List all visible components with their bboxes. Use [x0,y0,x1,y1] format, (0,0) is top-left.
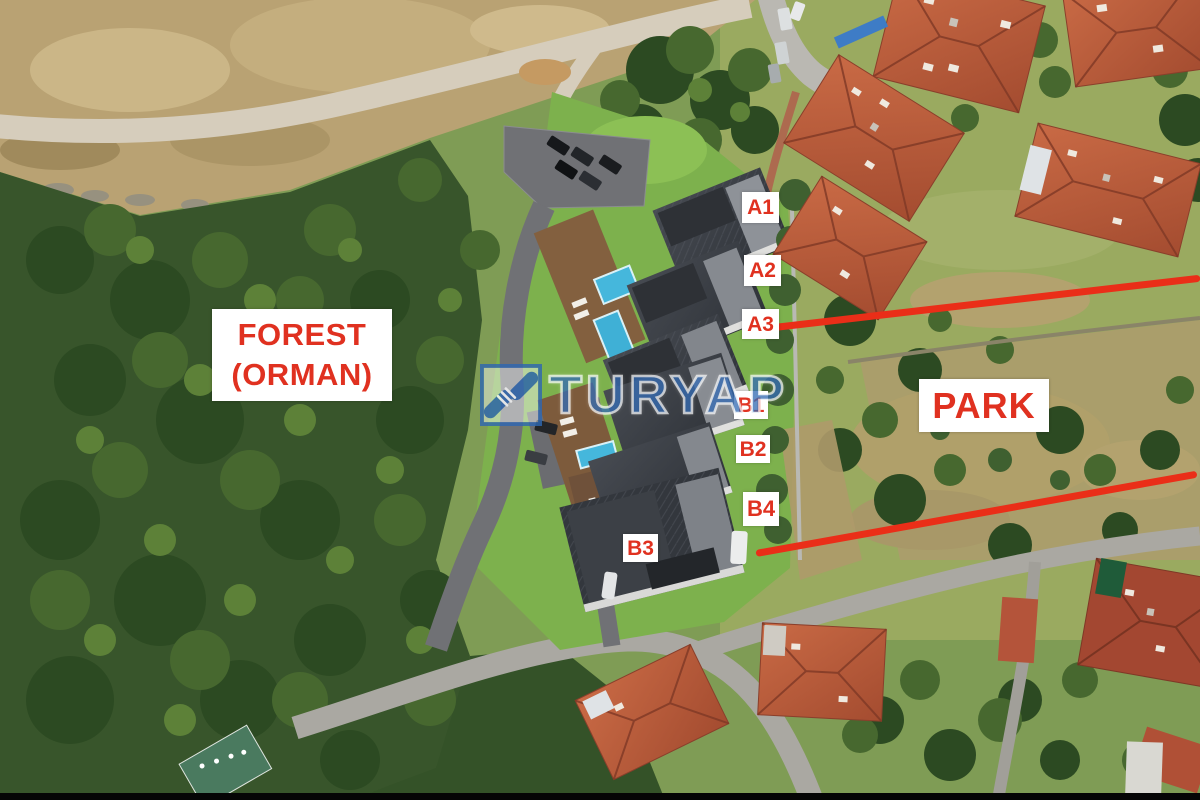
label-b4: B4 [743,492,779,526]
label-a3: A3 [742,309,779,339]
label-b3: B3 [623,534,658,562]
label-park: PARK [919,379,1049,432]
label-a1: A1 [742,192,779,223]
label-forest: FOREST (ORMAN) [212,309,392,401]
label-a2: A2 [744,255,781,286]
aerial-photo: FOREST (ORMAN) PARK A1 A2 A3 B1 B2 B4 B3… [0,0,1200,800]
label-b1: B1 [734,391,768,419]
label-forest-line1: FOREST [238,315,367,355]
letterbox-bar [0,793,1200,800]
label-forest-line2: (ORMAN) [231,355,372,395]
label-b2: B2 [736,435,770,463]
